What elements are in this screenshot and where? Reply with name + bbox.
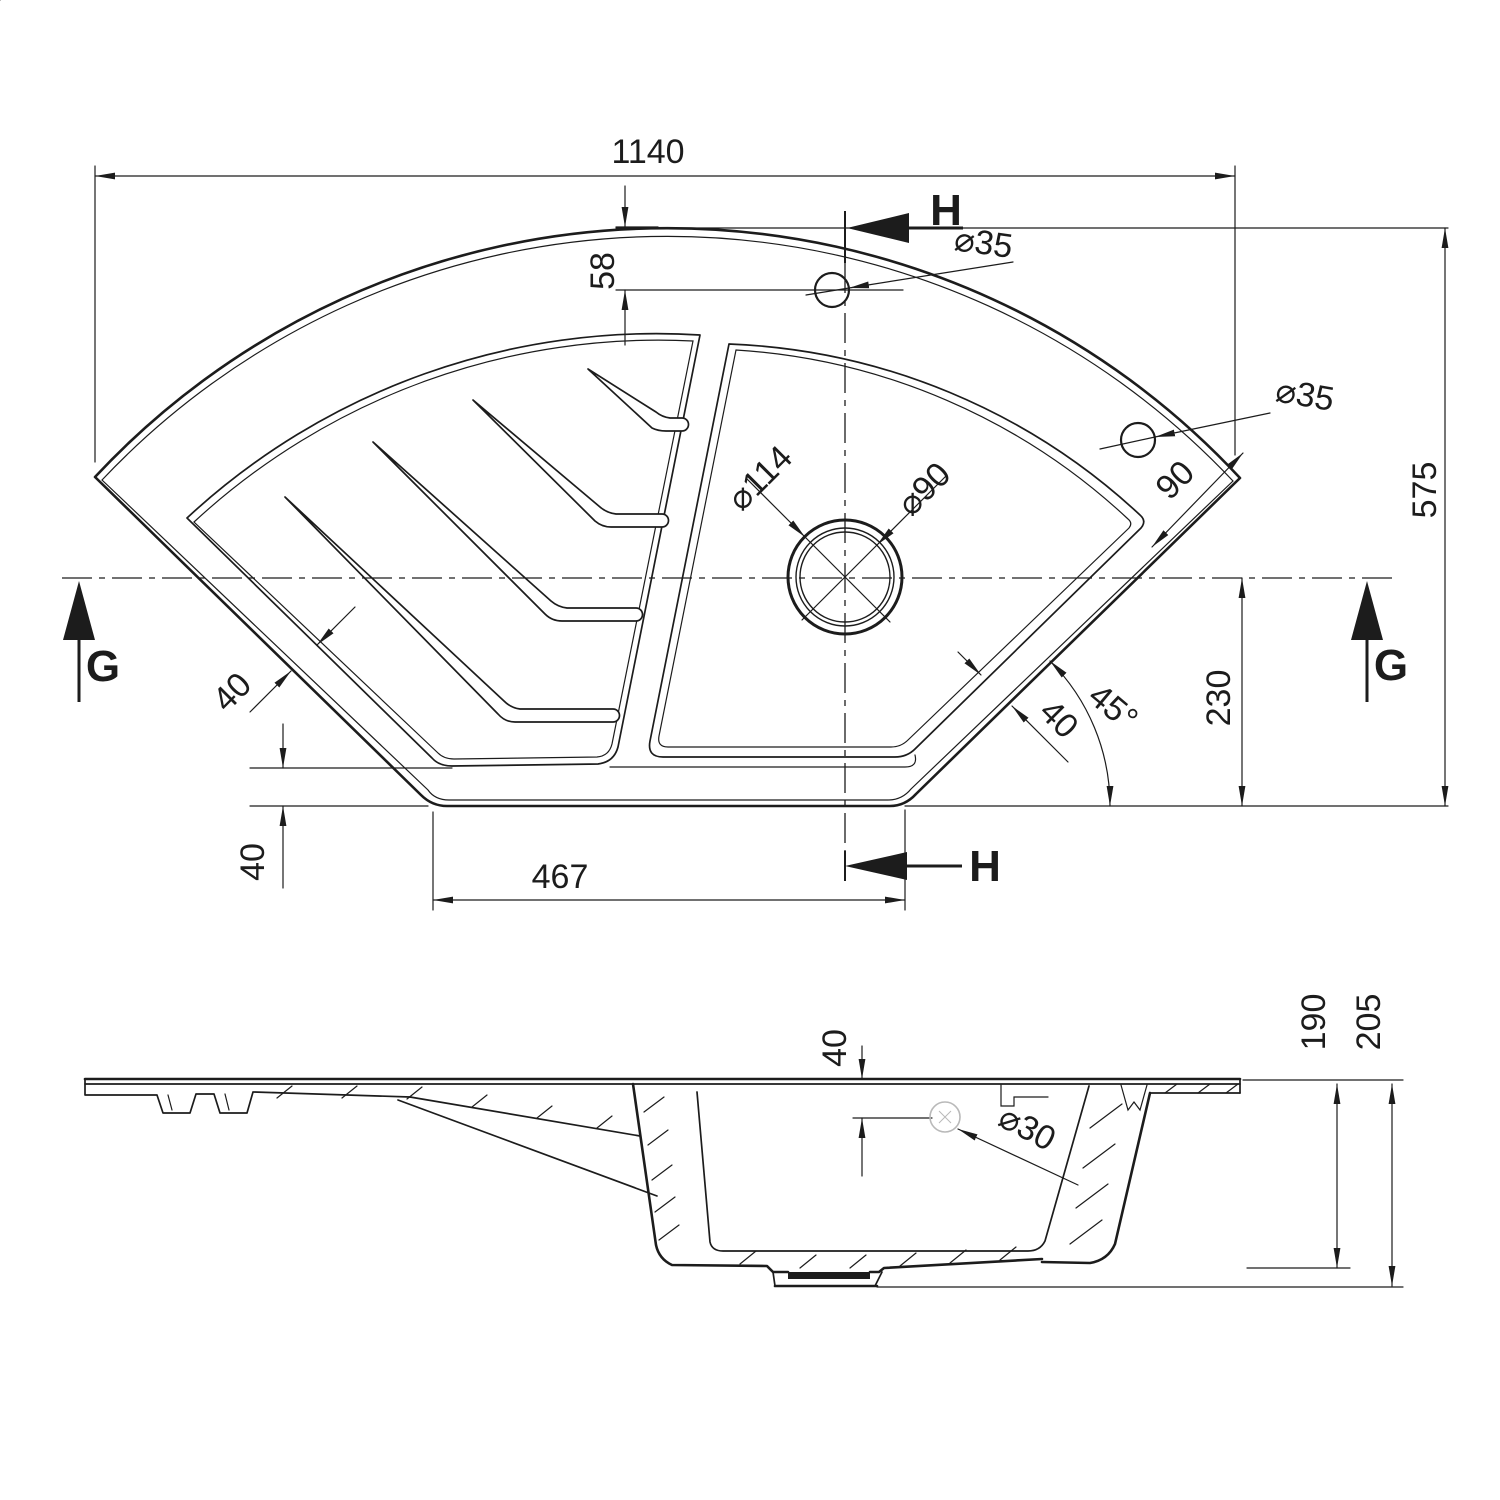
tap-hole-1 bbox=[806, 262, 1013, 307]
section-arrow-g-left: G bbox=[63, 581, 120, 702]
side-left-profile bbox=[85, 1079, 657, 1196]
section-h-bottom-label: H bbox=[969, 842, 1001, 891]
dim-rim-width-left: 40 bbox=[205, 607, 355, 719]
section-h-bottom-arrowhead bbox=[845, 852, 907, 880]
dim-total-width: 1140 bbox=[95, 133, 1235, 462]
dim-total-height-label: 205 bbox=[1350, 994, 1388, 1051]
dim-tap-hole-offset: 58 bbox=[584, 186, 903, 345]
drainboard-ribs bbox=[285, 369, 689, 722]
dim-rim-width-right: 40 bbox=[958, 652, 1086, 762]
dim-total-height: 205 bbox=[1350, 994, 1392, 1286]
dim-total-depth: 575 bbox=[1406, 228, 1445, 806]
section-hatching bbox=[277, 1084, 1238, 1268]
dim-overflow-offset-label: 40 bbox=[816, 1029, 854, 1067]
dim-bottom-edge-length: 467 bbox=[433, 810, 905, 910]
dim-total-width-label: 1140 bbox=[611, 133, 684, 171]
dim-bowl-depth-label: 190 bbox=[1295, 994, 1333, 1051]
dim-corner-offset-label: 90 bbox=[1148, 453, 1202, 507]
dim-bottom-edge-length-label: 467 bbox=[532, 858, 589, 896]
dim-bottom-rim-width-label: 40 bbox=[234, 843, 272, 881]
technical-drawing: ⌀114 ⌀90 ⌀35 ⌀35 1140 bbox=[0, 0, 1500, 1500]
section-g-left-label: G bbox=[86, 642, 120, 691]
tap-hole-2 bbox=[1100, 413, 1270, 457]
dim-center-to-bottom-label: 230 bbox=[1200, 670, 1238, 727]
rib-3 bbox=[373, 442, 643, 621]
side-clip-notch bbox=[1121, 1085, 1147, 1110]
dim-drain-diameter: ⌀90 bbox=[890, 455, 958, 523]
side-drain-opening bbox=[788, 1272, 870, 1279]
section-arrow-h-bottom: H bbox=[845, 842, 1001, 891]
dim-rim-width-right-label: 40 bbox=[1032, 692, 1086, 746]
section-arrow-h-top: H bbox=[616, 186, 1448, 263]
dim-center-to-bottom: 230 bbox=[1200, 578, 1242, 806]
overflow-hole: ⌀30 bbox=[930, 1098, 1078, 1185]
dim-bowl-depth: 190 bbox=[1247, 994, 1350, 1268]
dim-tap-hole-offset-label: 58 bbox=[584, 252, 622, 290]
drawing-page: ⌀114 ⌀90 ⌀35 ⌀35 1140 bbox=[0, 0, 1500, 1500]
dim-angle-label: 45° bbox=[1081, 676, 1145, 738]
dim-total-depth-label: 575 bbox=[1406, 462, 1444, 519]
rib-2 bbox=[473, 400, 669, 527]
rib-1 bbox=[588, 369, 689, 431]
dim-drain-flange-diameter: ⌀114 bbox=[720, 438, 800, 518]
top-view: ⌀114 ⌀90 ⌀35 ⌀35 1140 bbox=[0, 0, 1448, 910]
side-view: 40 ⌀30 190 205 bbox=[85, 994, 1403, 1287]
dim-tap-hole2-diameter: ⌀35 bbox=[1273, 371, 1337, 419]
dim-overflow-offset: 40 bbox=[816, 1029, 932, 1176]
section-arrow-g-right: G bbox=[1351, 581, 1408, 702]
section-h-top-label: H bbox=[930, 186, 962, 235]
section-h-arrowhead bbox=[847, 213, 909, 243]
section-g-right-label: G bbox=[1374, 641, 1408, 690]
